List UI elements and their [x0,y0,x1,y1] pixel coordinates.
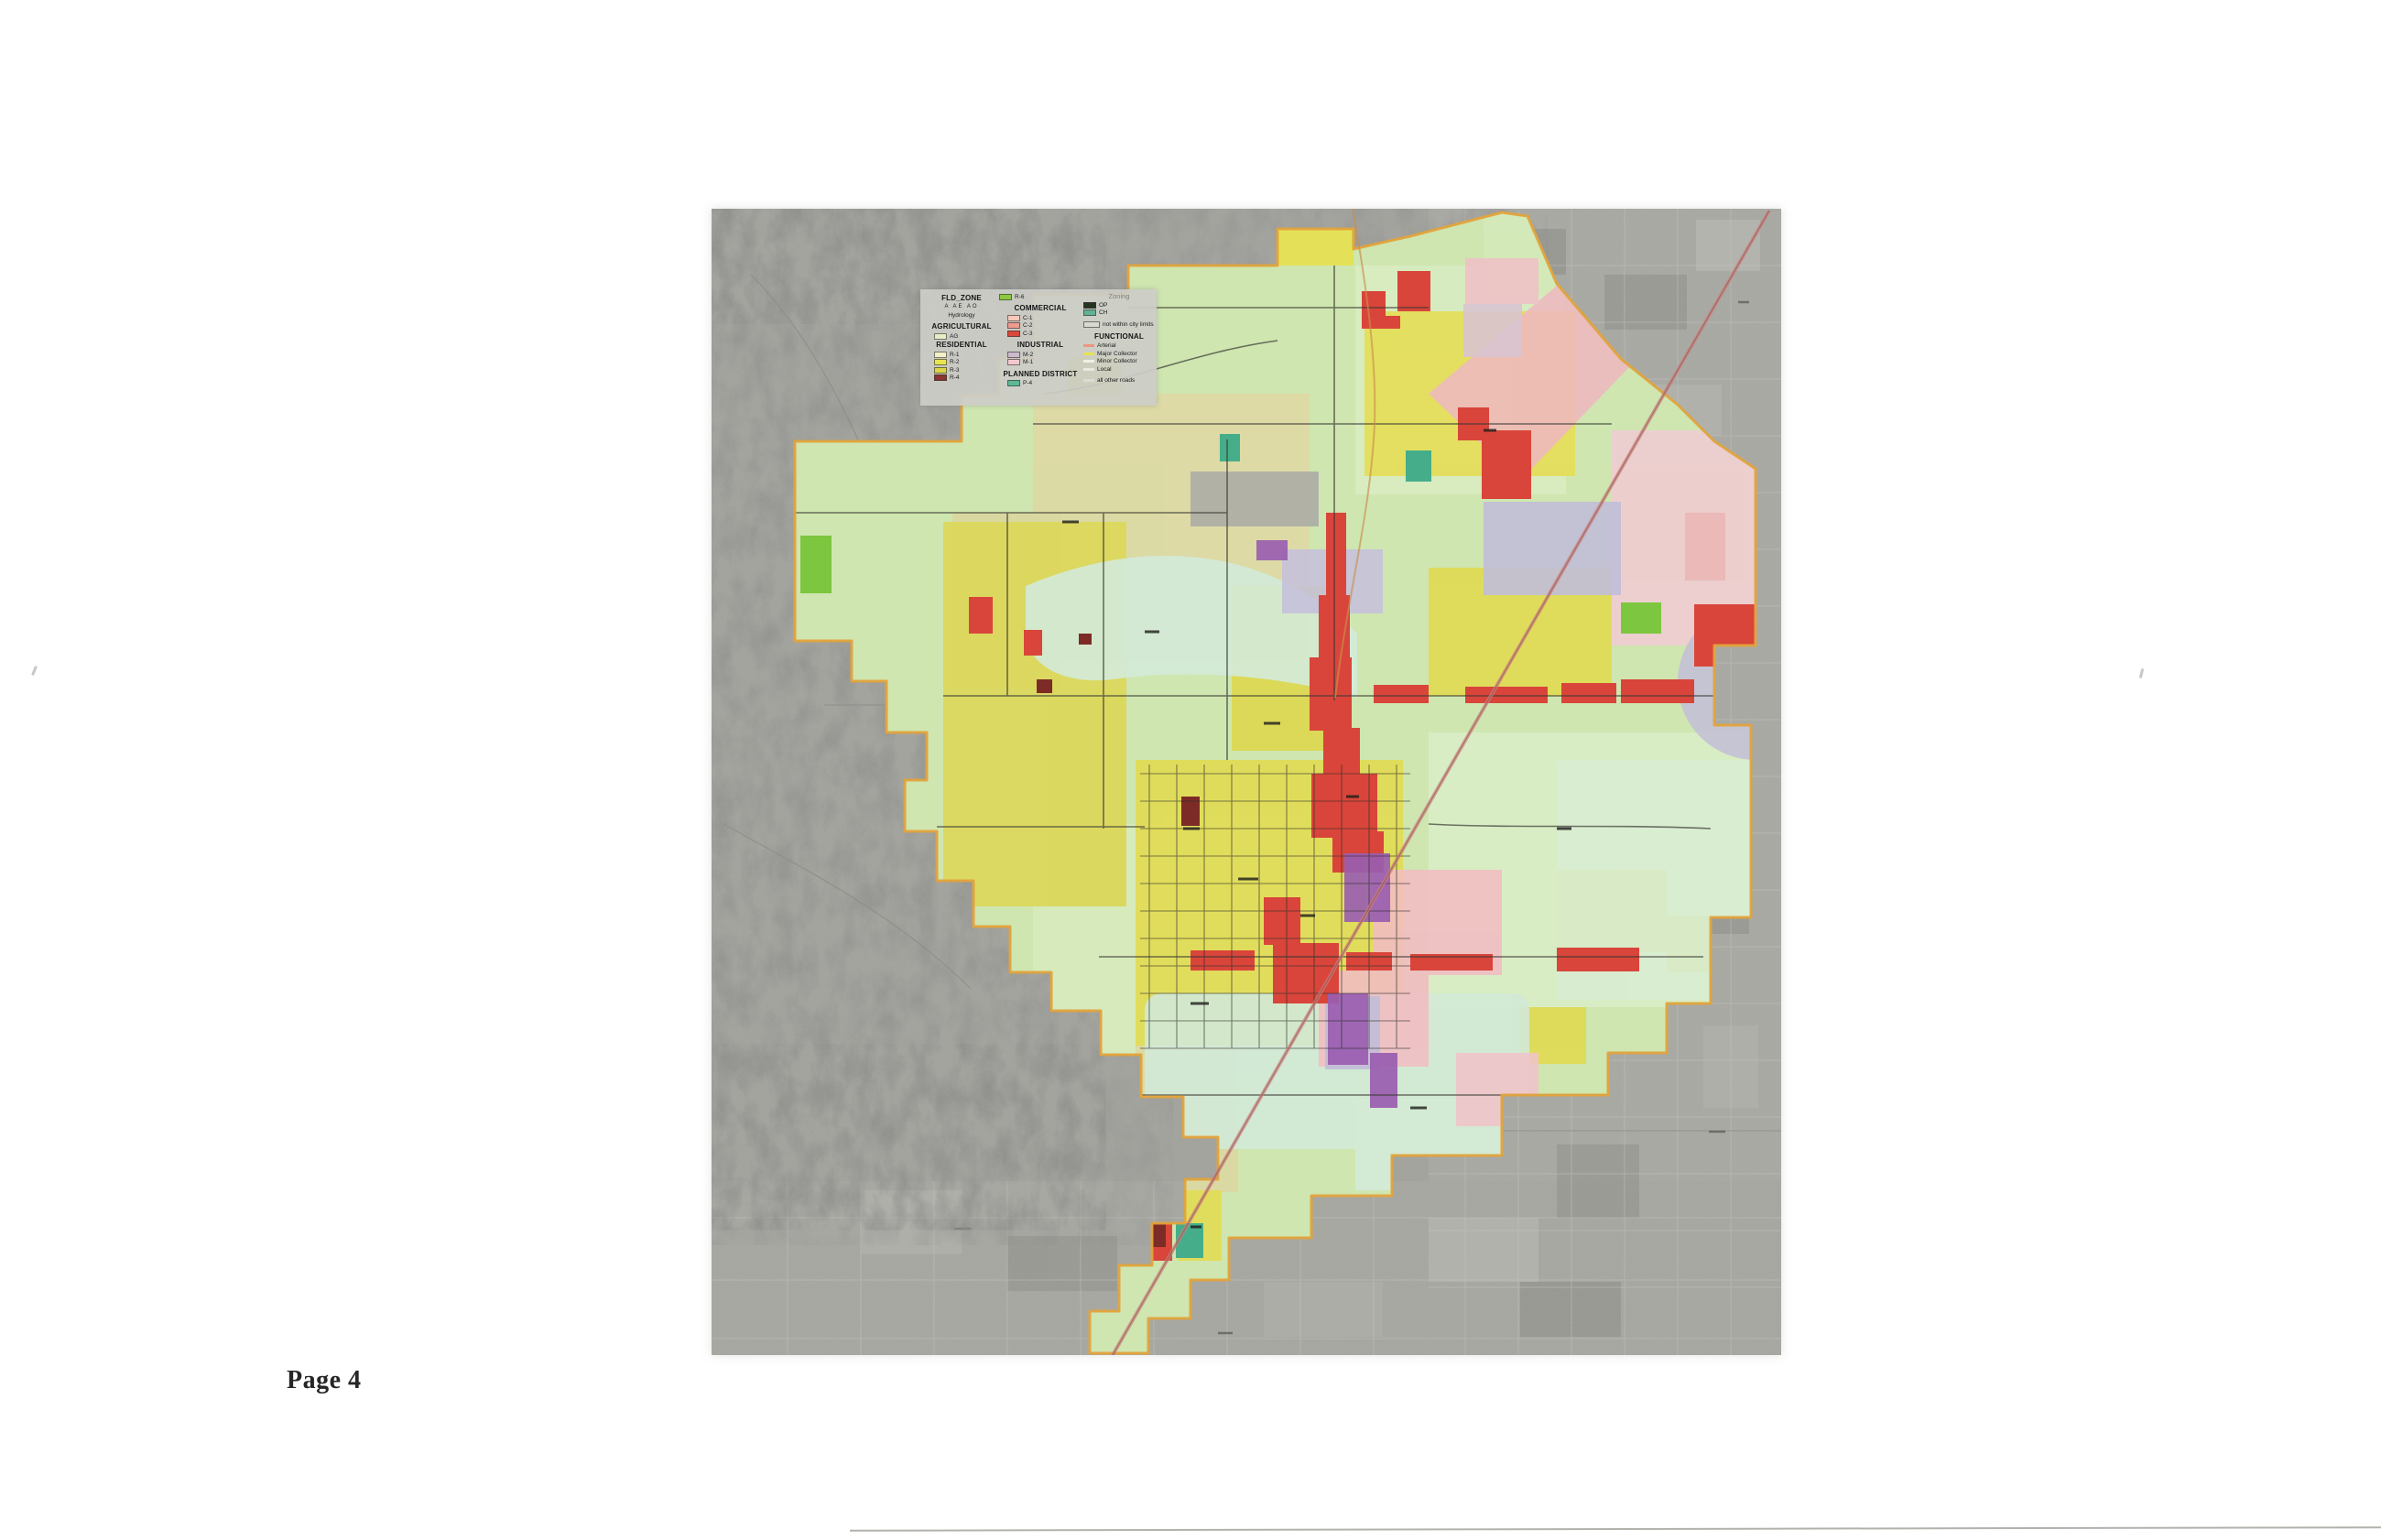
color-swatch [1007,315,1020,321]
page-edge-line [850,1526,2381,1532]
color-swatch [1083,302,1096,309]
zoning-map [712,209,1781,1355]
legend-title-fld-zone: FLD_ZONE [926,294,997,303]
legend-item-p4: P-4 [999,380,1082,386]
legend-item-hydrology: Hydrology [926,312,997,320]
legend-item-c1: C-1 [999,315,1082,321]
legend-item-ch: CH [1083,309,1155,316]
legend-item-r4: R-4 [926,374,997,381]
legend-item-c2: C-2 [999,322,1082,329]
legend-column-1: FLD_ZONE A AE AO Hydrology AGRICULTURAL … [926,294,997,383]
legend-fld-zone-codes: A AE AO [926,303,997,310]
legend-title-zoning: Zoning [1083,292,1155,300]
legend-item-all-other-roads: all other roads [1083,377,1155,384]
color-swatch [934,333,947,340]
legend-title-commercial: COMMERCIAL [999,304,1082,313]
page-number: Page 4 [287,1366,362,1395]
color-swatch [1083,309,1096,316]
legend-title-planned-district: PLANNED DISTRICT [999,370,1082,379]
color-swatch [1083,360,1094,363]
legend-item-not-within-city: not within city limits [1083,321,1155,328]
color-swatch [1083,368,1094,371]
legend: FLD_ZONE A AE AO Hydrology AGRICULTURAL … [920,289,1157,406]
legend-item-minor-collector: Minor Collector [1083,358,1155,364]
legend-item-r3: R-3 [926,367,997,374]
zone-gray-island [1190,472,1319,526]
color-swatch [1007,359,1020,365]
legend-column-3: Zoning OP CH not within city limits FUNC… [1083,292,1155,385]
zoning-map-canvas [712,209,1781,1355]
scan-mark-left [31,666,38,676]
color-swatch [1083,352,1094,355]
color-swatch [934,352,947,358]
legend-item-r1: R-1 [926,352,997,358]
color-swatch [934,359,947,365]
legend-item-major-collector: Major Collector [1083,351,1155,357]
legend-title-industrial: INDUSTRIAL [999,341,1082,350]
scan-mark-right [2139,668,2145,678]
color-swatch [1083,321,1100,328]
legend-item-arterial: Arterial [1083,342,1155,349]
color-swatch [934,374,947,381]
legend-title-residential: RESIDENTIAL [926,341,997,350]
legend-item-r6: R-6 [999,294,1082,300]
color-swatch [1007,380,1020,386]
scanned-page: FLD_ZONE A AE AO Hydrology AGRICULTURAL … [0,0,2381,1540]
legend-item-ag: AG [926,333,997,340]
color-swatch [1007,352,1020,358]
legend-item-m2: M-2 [999,352,1082,358]
color-swatch [1007,322,1020,329]
color-swatch [1007,331,1020,337]
color-swatch [1083,344,1094,347]
color-swatch [1083,379,1094,382]
color-swatch [999,294,1012,300]
legend-item-m1: M-1 [999,359,1082,365]
color-swatch [934,367,947,374]
legend-item-c3: C-3 [999,331,1082,337]
legend-title-functional: FUNCTIONAL [1083,332,1155,342]
legend-column-2: R-6 COMMERCIAL C-1 C-2 C-3 INDUSTRIAL M-… [999,292,1082,388]
legend-item-r2: R-2 [926,359,997,365]
legend-item-op: OP [1083,302,1155,309]
legend-title-agricultural: AGRICULTURAL [926,322,997,331]
legend-item-local: Local [1083,366,1155,373]
